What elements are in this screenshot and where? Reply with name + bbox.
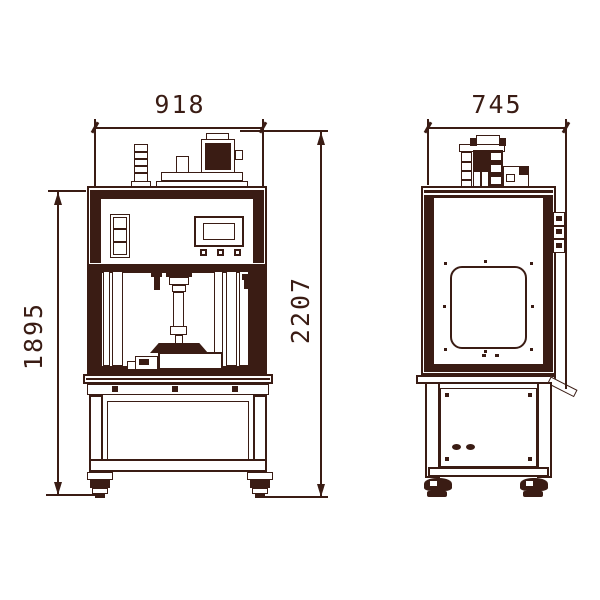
dim-text-2207: 2207 [288, 270, 314, 350]
extension-line [240, 130, 328, 132]
drawing-canvas: 918 745 1895 2207 [0, 0, 600, 600]
dimension-2207: 2207 [0, 0, 600, 600]
dim-arrow-down [317, 484, 325, 497]
dim-line [320, 131, 322, 497]
dim-arrow-up [317, 132, 325, 145]
